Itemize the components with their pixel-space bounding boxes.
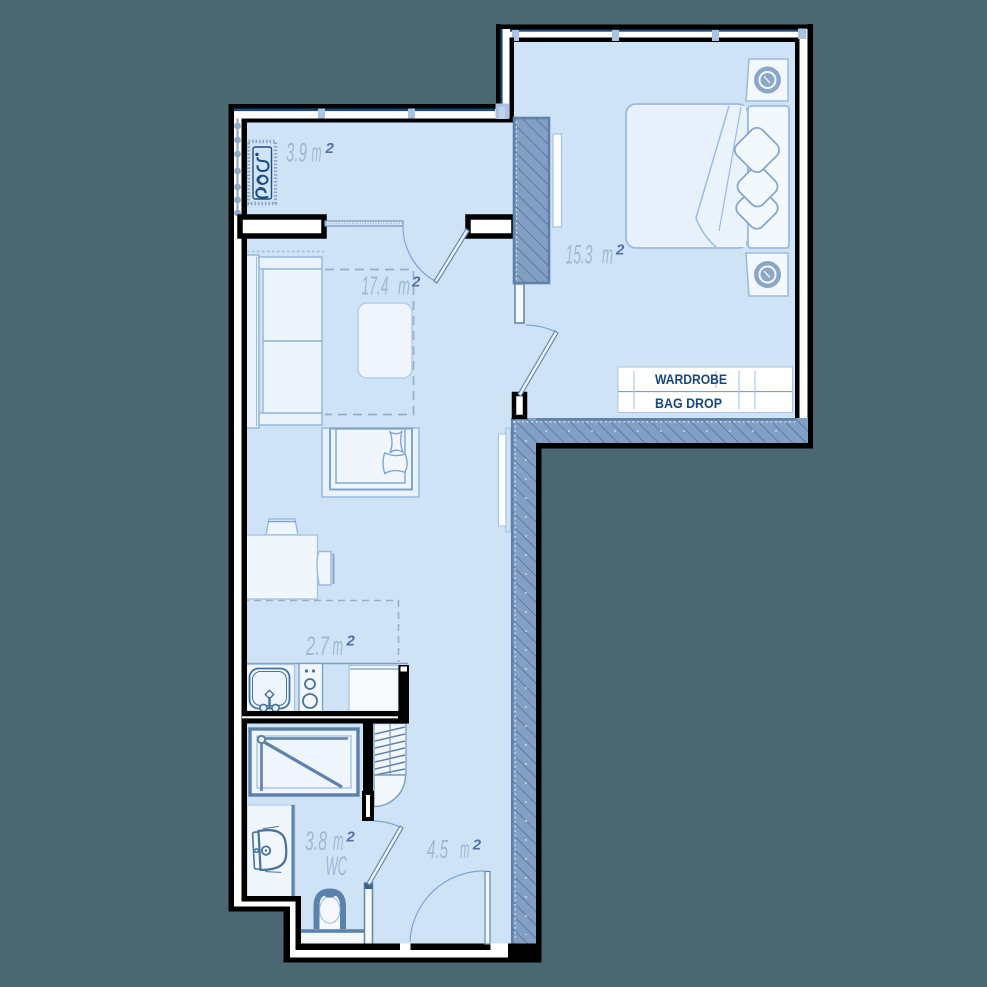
svg-text:17.4: 17.4: [362, 271, 389, 301]
svg-text:2.7: 2.7: [305, 631, 329, 661]
svg-text:WARDROBE: WARDROBE: [655, 371, 727, 387]
svg-text:15.3: 15.3: [566, 240, 593, 270]
svg-text:WC: WC: [326, 851, 348, 881]
svg-text:2: 2: [411, 274, 421, 291]
svg-text:m: m: [602, 240, 613, 270]
svg-text:4.5: 4.5: [427, 834, 448, 864]
svg-text:BAG DROP: BAG DROP: [655, 395, 722, 411]
svg-text:m: m: [312, 138, 322, 168]
svg-text:2: 2: [472, 837, 482, 854]
svg-text:2: 2: [346, 633, 356, 650]
svg-text:2: 2: [346, 829, 356, 846]
svg-text:2: 2: [325, 140, 335, 157]
svg-text:2: 2: [615, 242, 625, 259]
svg-text:3.9: 3.9: [286, 138, 307, 168]
svg-text:m: m: [398, 271, 410, 301]
svg-text:3.8: 3.8: [305, 826, 327, 856]
svg-text:m: m: [460, 834, 470, 864]
svg-text:m: m: [333, 631, 344, 661]
